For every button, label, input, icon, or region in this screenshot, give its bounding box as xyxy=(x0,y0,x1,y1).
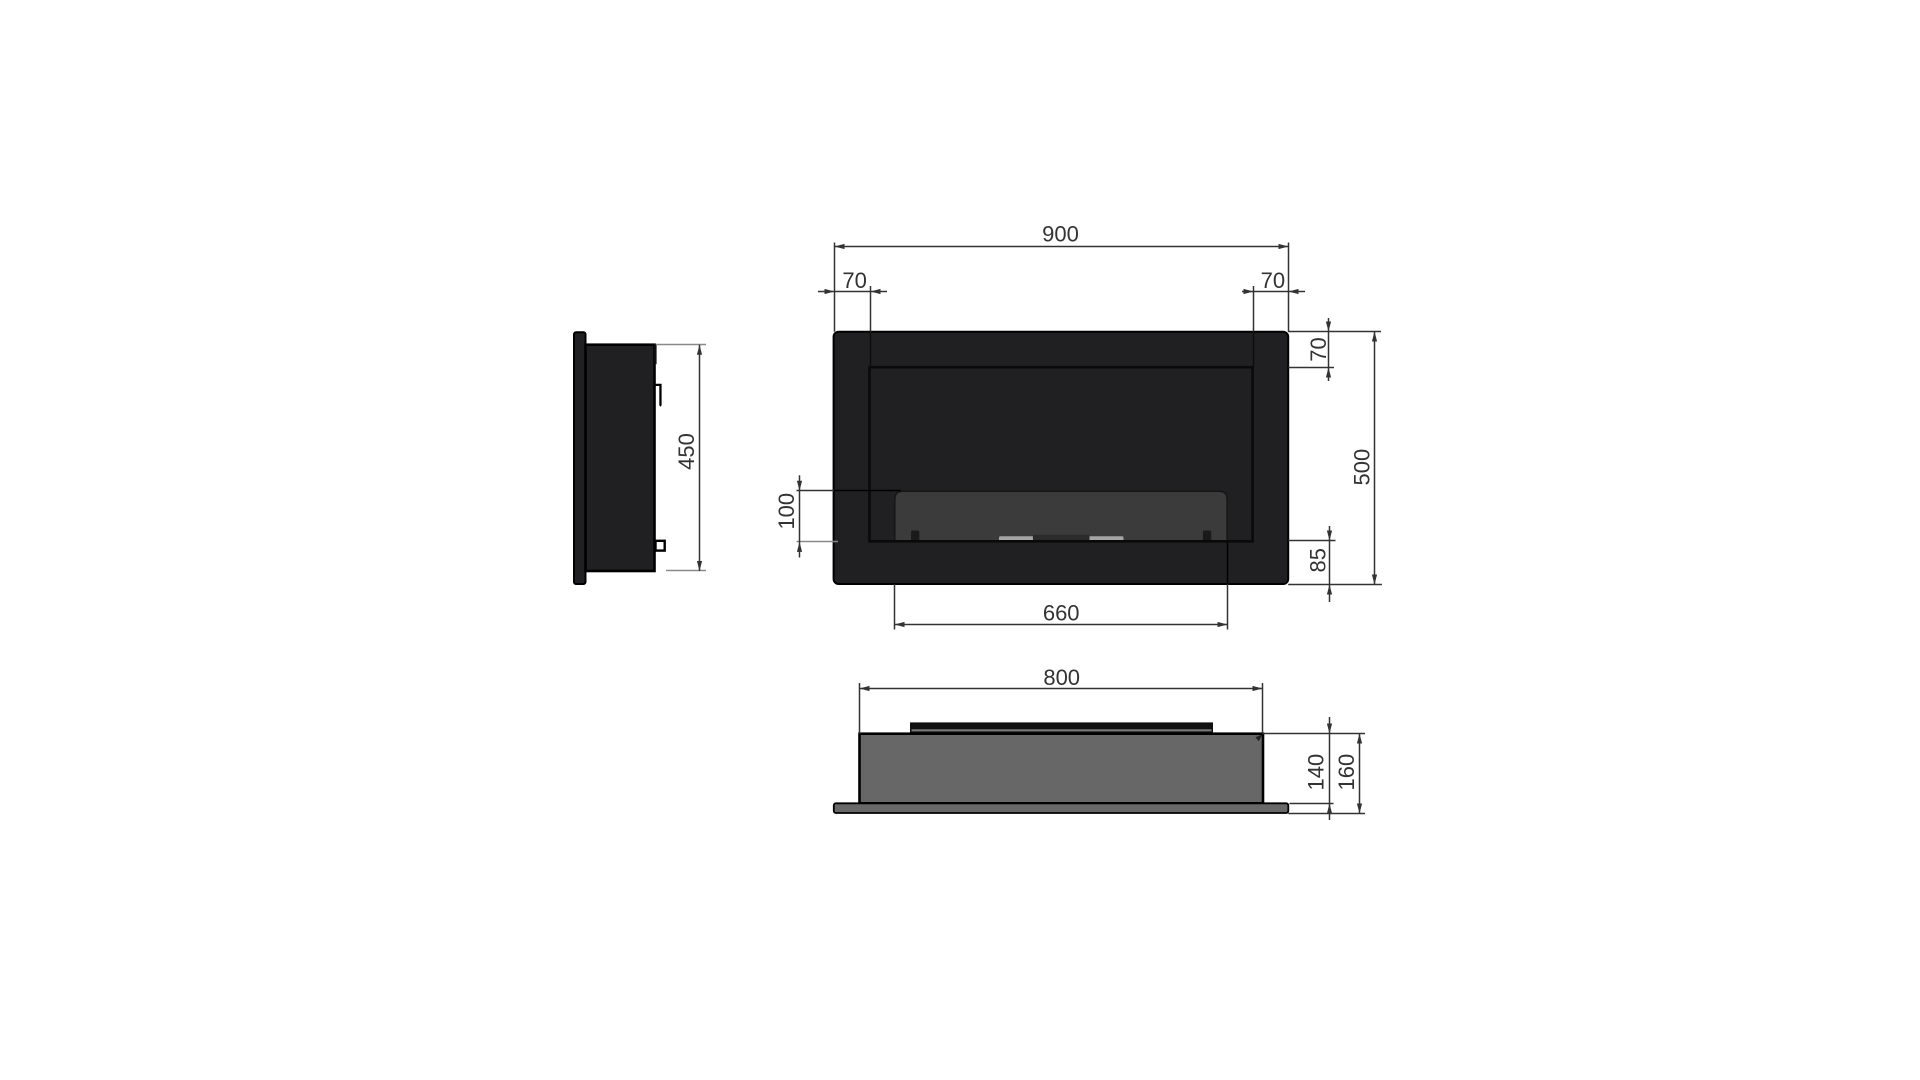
svg-text:70: 70 xyxy=(1261,268,1285,293)
svg-text:100: 100 xyxy=(774,493,799,530)
svg-text:70: 70 xyxy=(1306,337,1331,361)
svg-text:450: 450 xyxy=(674,433,699,470)
svg-text:500: 500 xyxy=(1350,449,1375,486)
svg-text:660: 660 xyxy=(1043,601,1080,626)
svg-text:800: 800 xyxy=(1043,665,1080,690)
svg-text:85: 85 xyxy=(1306,548,1331,572)
svg-text:140: 140 xyxy=(1304,754,1329,791)
svg-text:900: 900 xyxy=(1042,222,1079,247)
svg-text:160: 160 xyxy=(1334,754,1359,791)
svg-text:70: 70 xyxy=(842,268,866,293)
